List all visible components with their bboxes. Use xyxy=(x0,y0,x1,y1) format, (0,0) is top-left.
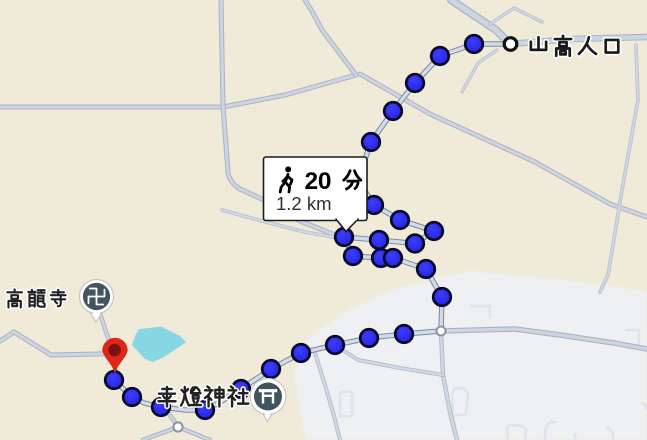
svg-text:20: 20 xyxy=(305,168,332,195)
svg-text:1.2 km: 1.2 km xyxy=(276,193,332,214)
